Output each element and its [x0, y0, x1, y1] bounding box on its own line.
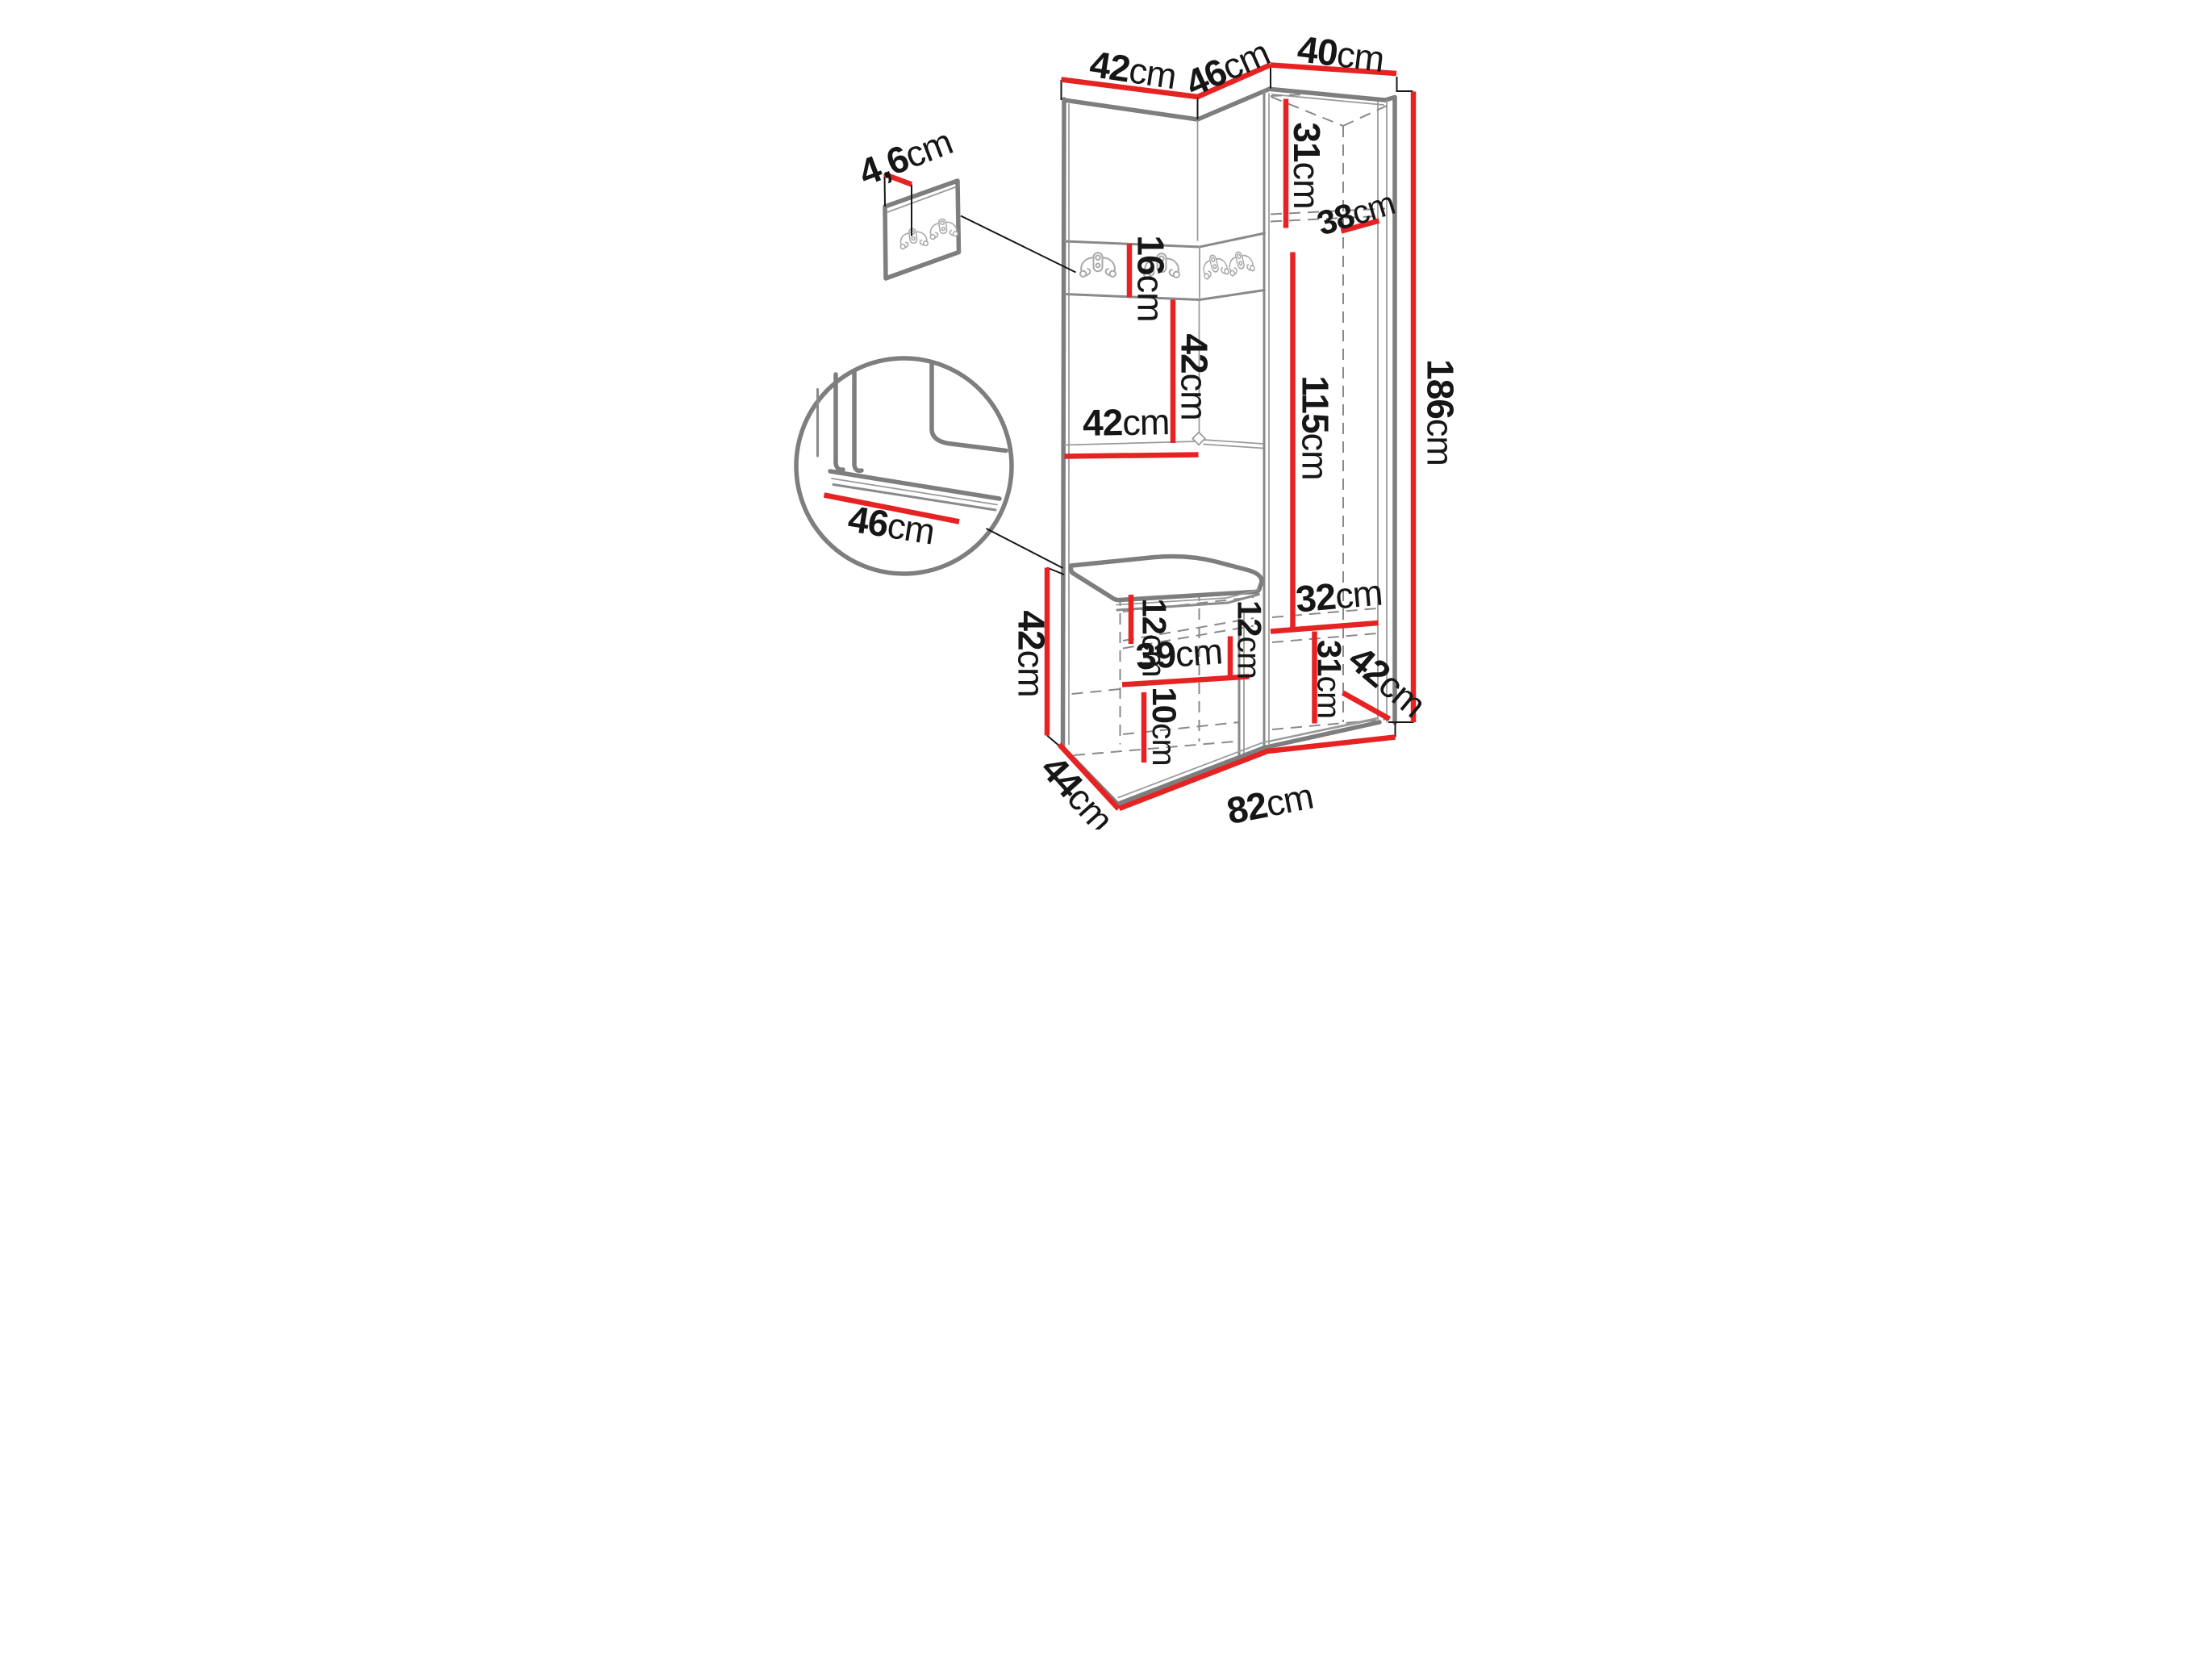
dim-label-total-height: 186cm [1419, 359, 1461, 466]
detail-leader-line [961, 216, 1076, 273]
dim-label-open-section-height: 42cm [1173, 333, 1215, 420]
coat-hook-icon [1225, 249, 1254, 277]
hook-panel-board [885, 181, 959, 278]
dim-label-cabinet-bottom-height: 31cm [1310, 640, 1348, 718]
left-panel-top-edge [1064, 100, 1198, 119]
cabinet-dashed-top-left [1271, 97, 1343, 126]
dim-label-bench-shelf-width: 39cm [1134, 629, 1224, 677]
left-panel-edge [1062, 99, 1064, 748]
dim-label-cabinet-inner-height: 115cm [1294, 375, 1336, 479]
shelf-joint-diamond [1192, 433, 1205, 445]
shelf-link-line-1 [1204, 440, 1263, 444]
coat-hook-icon [1200, 253, 1229, 280]
dim-line-cabinet-shelf-width [1271, 623, 1379, 632]
dim-label-bench-height: 42cm [1010, 610, 1052, 696]
hook-panel-detail [884, 174, 1075, 278]
dim-label-cabinet-shelf-width: 32cm [1293, 570, 1383, 620]
coat-hook-icon [1080, 253, 1116, 277]
dim-line-shelf-width [1064, 455, 1198, 457]
dim-label-top-width-left: 42cm [1087, 43, 1179, 97]
dim-label-cabinet-top-height: 31cm [1286, 122, 1328, 208]
bench-dashed-shelf-4 [1071, 689, 1120, 694]
detail-leader-line [986, 529, 1062, 568]
furniture-dimension-diagram: 42cm 46cm 40cm 186cm 31cm 38cm 115cm 16c… [553, 0, 1659, 829]
dim-label-hook-strip-height: 16cm [1129, 235, 1171, 321]
dim-label-top-width-right: 40cm [1295, 27, 1386, 80]
bench-cushion [1071, 557, 1262, 600]
cabinet-dashed-top-right [1343, 106, 1387, 126]
dim-label-bench-bottom-gap: 10cm [1146, 687, 1183, 765]
shelf-link-line-2 [1204, 445, 1263, 449]
dim-label-bench-mid-gap: 12cm [1230, 600, 1268, 679]
dim-label-total-width: 82cm [1223, 775, 1316, 829]
dim-line-bench-shelf-width [1122, 677, 1250, 685]
dim-label-shelf-width: 42cm [1082, 400, 1169, 444]
extension-line [1396, 77, 1413, 91]
